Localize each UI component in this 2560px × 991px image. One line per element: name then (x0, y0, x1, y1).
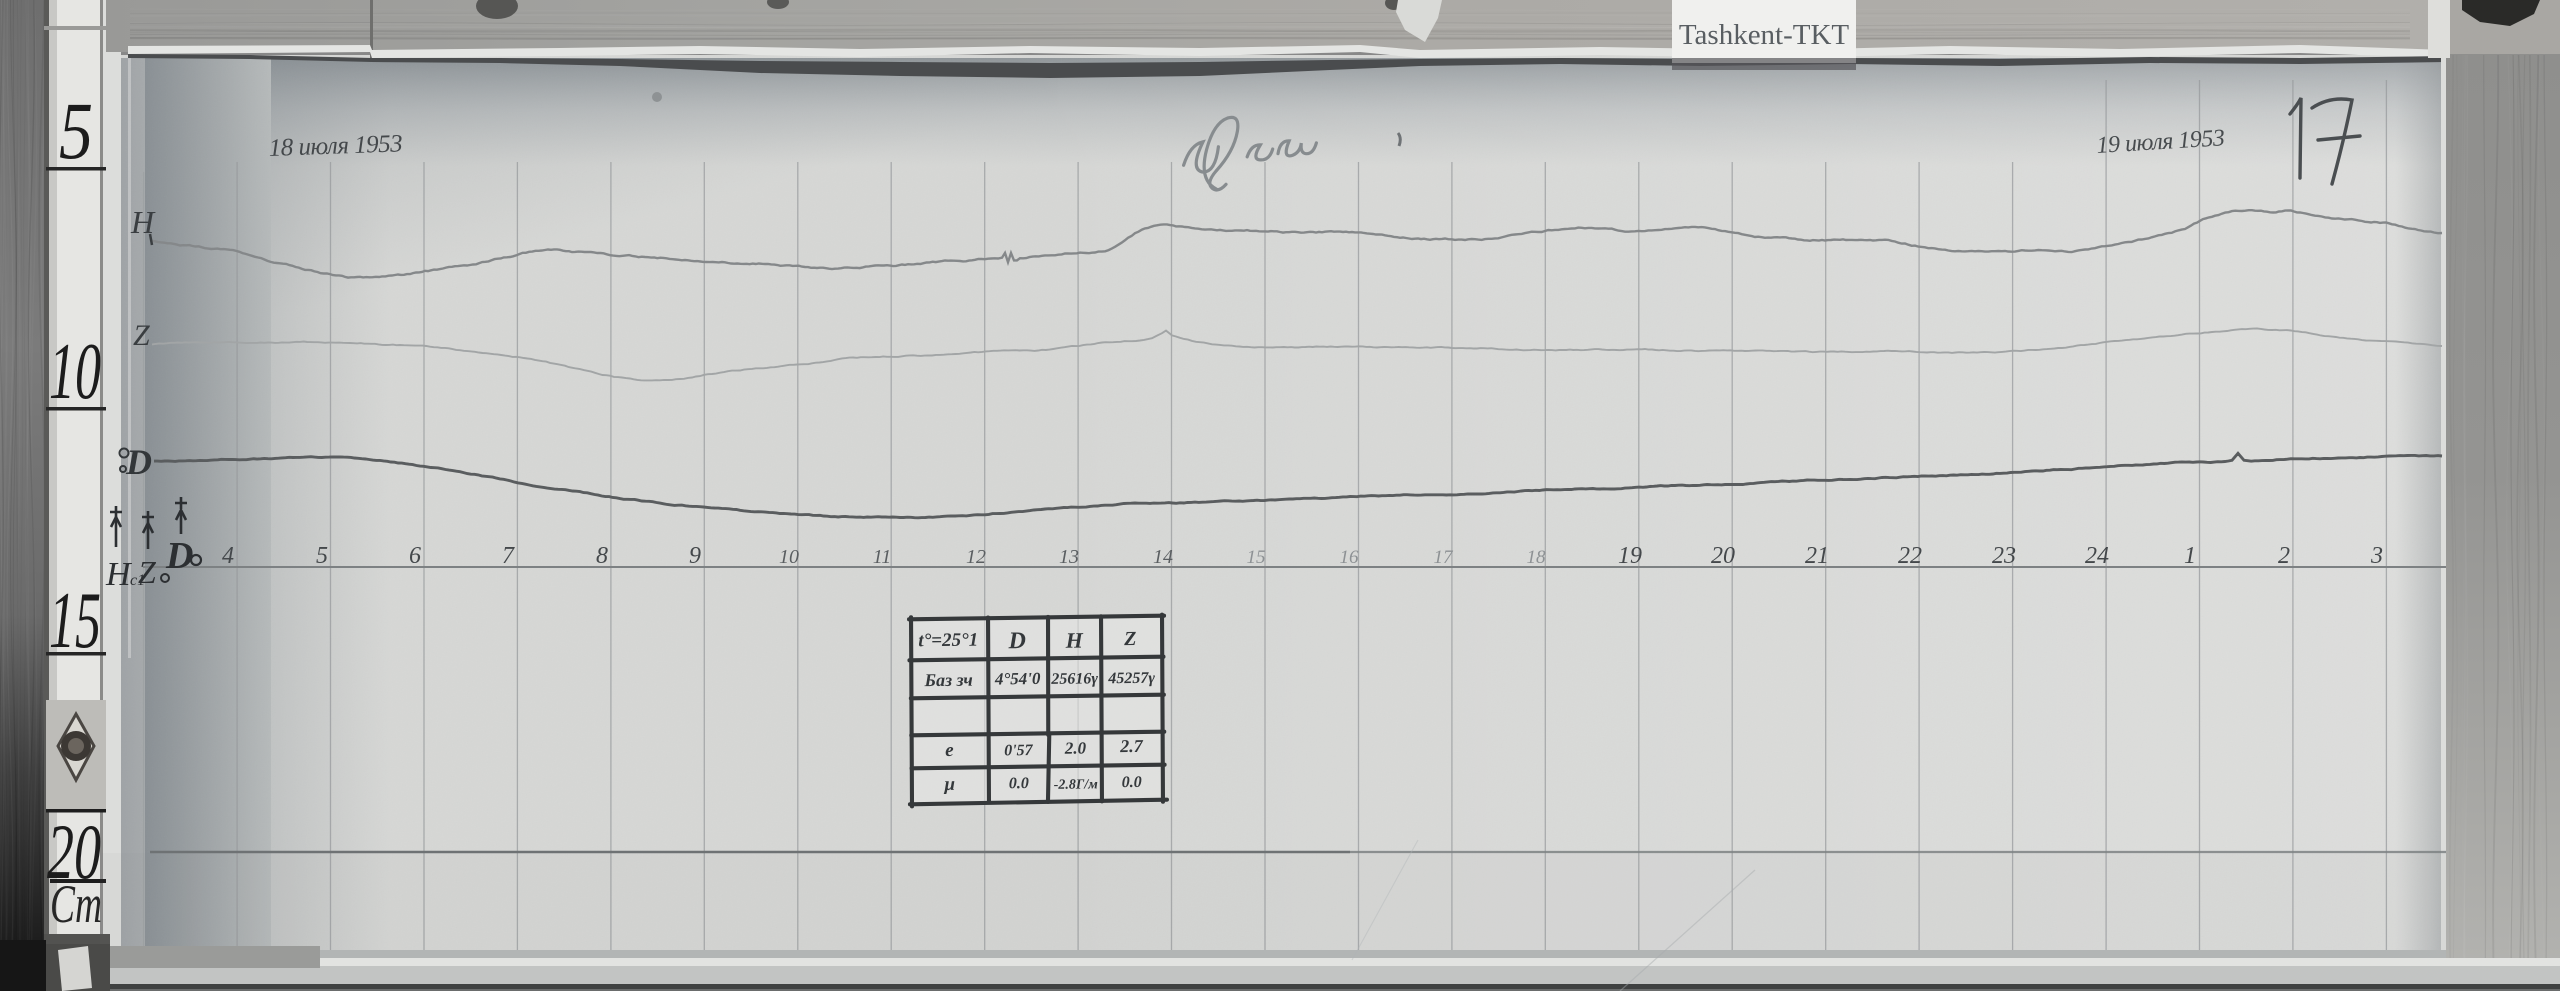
svg-text:0'57: 0'57 (1004, 742, 1034, 759)
svg-text:23: 23 (1992, 543, 2016, 569)
svg-text:14: 14 (1153, 546, 1173, 568)
svg-text:Н: Н (1065, 628, 1084, 653)
svg-text:0.0: 0.0 (1122, 774, 1142, 791)
svg-text:Z: Z (138, 554, 157, 590)
svg-text:2: 2 (2278, 543, 2290, 569)
svg-text:Z: Z (133, 319, 150, 352)
svg-text:4°54'0: 4°54'0 (994, 669, 1041, 688)
svg-text:11: 11 (873, 546, 892, 568)
svg-text:15: 15 (1247, 547, 1266, 568)
svg-text:6: 6 (409, 543, 421, 569)
svg-text:Tashkent-TKT: Tashkent-TKT (1679, 19, 1850, 51)
svg-text:Н: Н (105, 556, 133, 593)
svg-text:μ: μ (943, 774, 955, 795)
svg-text:3: 3 (2370, 543, 2383, 569)
svg-text:15: 15 (49, 577, 101, 665)
svg-text:18: 18 (1527, 547, 1547, 568)
svg-text:5: 5 (59, 85, 93, 176)
svg-text:t°=25°1: t°=25°1 (918, 630, 978, 652)
svg-text:21: 21 (1805, 543, 1829, 569)
svg-text:1: 1 (2184, 543, 2196, 569)
svg-text:10: 10 (49, 328, 101, 416)
svg-text:9: 9 (689, 543, 701, 569)
svg-text:10: 10 (779, 546, 799, 568)
svg-text:18 июля 1953: 18 июля 1953 (268, 130, 402, 162)
svg-text:D: D (1007, 628, 1026, 654)
svg-text:e: e (945, 740, 954, 761)
svg-text:2.0: 2.0 (1064, 738, 1087, 757)
svg-text:12: 12 (966, 546, 986, 568)
svg-text:20: 20 (1711, 543, 1735, 569)
svg-text:25616γ: 25616γ (1050, 670, 1098, 688)
svg-text:19: 19 (1618, 543, 1642, 569)
svg-text:13: 13 (1059, 546, 1079, 568)
svg-text:5: 5 (316, 543, 328, 569)
svg-text:Баз зч: Баз зч (923, 670, 972, 691)
svg-text:45257γ: 45257γ (1107, 670, 1155, 688)
svg-text:17: 17 (1434, 547, 1455, 568)
svg-text:2.7: 2.7 (1119, 736, 1144, 756)
svg-text:D: D (125, 442, 152, 482)
svg-text:4: 4 (222, 543, 234, 569)
svg-text:8: 8 (596, 543, 608, 569)
svg-text:0.0: 0.0 (1009, 775, 1029, 792)
svg-text:24: 24 (2085, 543, 2109, 569)
svg-text:22: 22 (1898, 543, 1922, 569)
svg-text:D: D (165, 535, 193, 577)
svg-text:7: 7 (502, 543, 515, 569)
svg-text:Z: Z (1123, 628, 1136, 650)
svg-text:Н: Н (130, 204, 156, 240)
svg-text:-2.8Г/м: -2.8Г/м (1054, 777, 1099, 792)
svg-text:16: 16 (1340, 547, 1360, 568)
svg-text:Cm: Cm (50, 874, 102, 934)
